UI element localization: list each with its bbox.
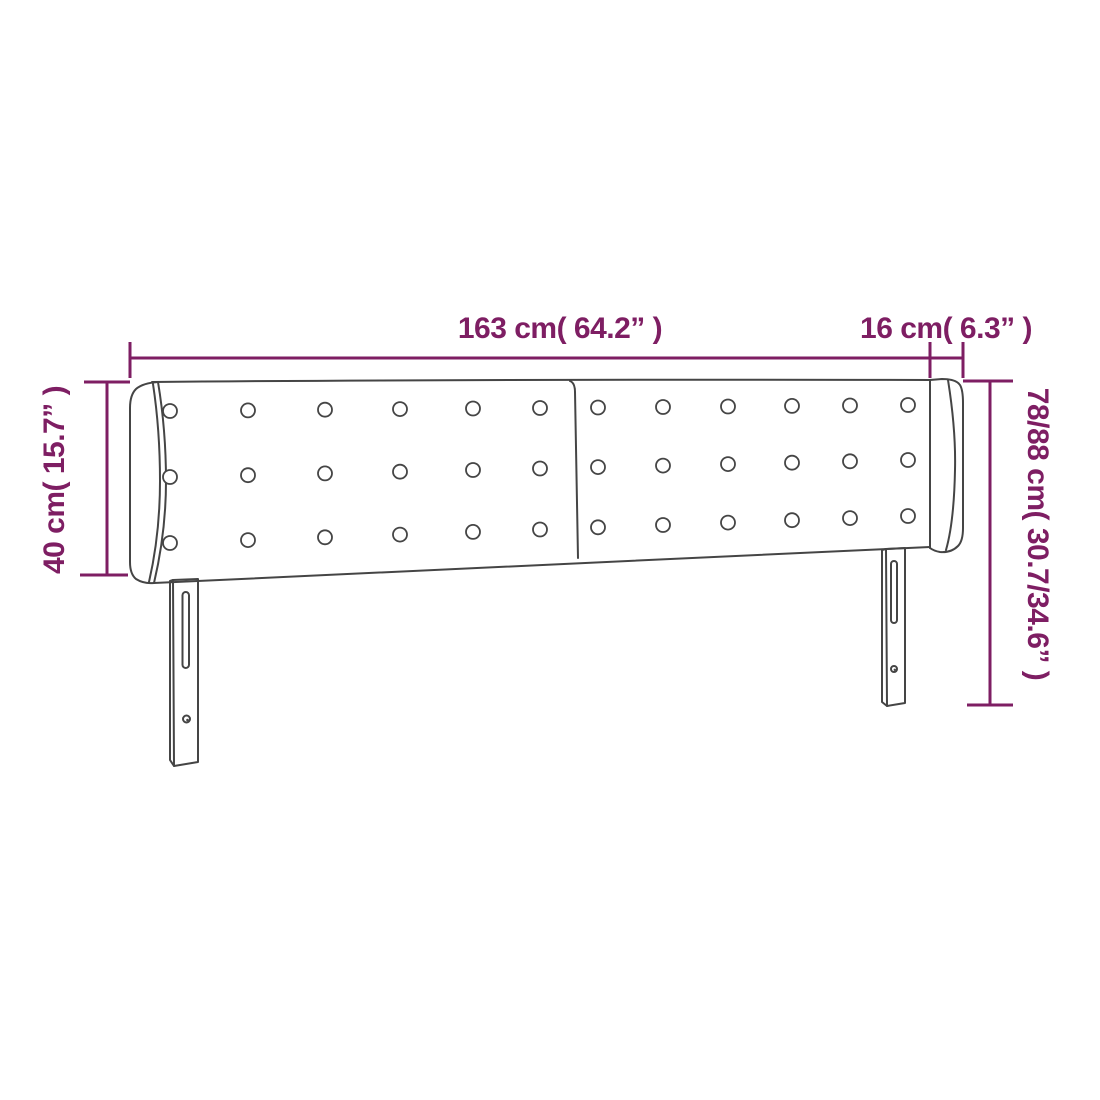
panel-center-seam: [570, 381, 578, 558]
tufting-button: [533, 462, 547, 476]
tufting-button: [533, 401, 547, 415]
right-ear-crease: [946, 380, 955, 550]
tufting-button: [721, 516, 735, 530]
tufting-button: [721, 457, 735, 471]
tufting-button: [163, 404, 177, 418]
tufting-button: [901, 398, 915, 412]
tufting-button: [466, 463, 480, 477]
right-leg-front-face: [886, 548, 905, 706]
left-leg-front-face: [173, 579, 198, 766]
left-ear: [130, 382, 166, 583]
tufting-button: [241, 533, 255, 547]
tufting-button: [533, 523, 547, 537]
ear-depth-dimension-label: 16 cm( 6.3” ): [860, 312, 1032, 345]
left-ear-crease: [149, 384, 160, 582]
tufting-button: [393, 402, 407, 416]
tufting-button: [466, 525, 480, 539]
left-leg-slot: [183, 592, 190, 668]
tufting-button: [318, 530, 332, 544]
panel-bottom-edge: [154, 547, 930, 583]
tufting-button: [843, 399, 857, 413]
tufting-button: [843, 511, 857, 525]
tufting-button: [591, 460, 605, 474]
right-leg-screw-hole-dot: [894, 669, 896, 671]
tufting-button: [843, 454, 857, 468]
ear-height-dimension-label: 40 cm( 15.7” ): [38, 386, 71, 574]
panel-top-edge: [152, 380, 930, 382]
right-ear: [930, 379, 963, 552]
tufting-button: [241, 403, 255, 417]
tufting-button: [901, 453, 915, 467]
tufting-button: [591, 401, 605, 415]
tufting-button: [318, 403, 332, 417]
button-grid: [163, 398, 915, 550]
tufting-button: [591, 520, 605, 534]
product-dimension-diagram: 163 cm( 64.2” ) 16 cm( 6.3” ) 40 cm( 15.…: [0, 0, 1100, 1100]
dimension-annotations: [80, 342, 1013, 705]
tufting-button: [318, 466, 332, 480]
right-leg: [882, 548, 905, 706]
tufting-button: [656, 400, 670, 414]
left-height-dimension: [80, 382, 130, 575]
tufting-button: [785, 456, 799, 470]
left-leg-screw-hole: [183, 716, 190, 723]
tufting-button: [721, 400, 735, 414]
tufting-button: [163, 470, 177, 484]
headboard-drawing: [130, 379, 963, 766]
width-dimension: [130, 342, 963, 378]
tufting-button: [785, 399, 799, 413]
right-ear-outline: [930, 379, 963, 552]
left-leg-screw-hole-dot: [186, 719, 189, 722]
tufting-button: [393, 465, 407, 479]
right-leg-slot: [891, 561, 897, 623]
tufting-button: [163, 536, 177, 550]
tufting-button: [466, 402, 480, 416]
total-height-dimension-label: 78/88 cm( 30.7/34.6” ): [1021, 388, 1054, 681]
tufting-button: [901, 509, 915, 523]
tufting-button: [241, 468, 255, 482]
tufting-button: [656, 459, 670, 473]
width-dimension-label: 163 cm( 64.2” ): [458, 312, 662, 345]
dimension-labels: 163 cm( 64.2” ) 16 cm( 6.3” ) 40 cm( 15.…: [38, 312, 1054, 680]
tufting-button: [785, 513, 799, 527]
left-leg: [170, 579, 198, 766]
tufting-button: [656, 518, 670, 532]
right-height-dimension: [963, 381, 1013, 705]
headboard-diagram-canvas: 163 cm( 64.2” ) 16 cm( 6.3” ) 40 cm( 15.…: [0, 0, 1100, 1100]
tufting-button: [393, 528, 407, 542]
